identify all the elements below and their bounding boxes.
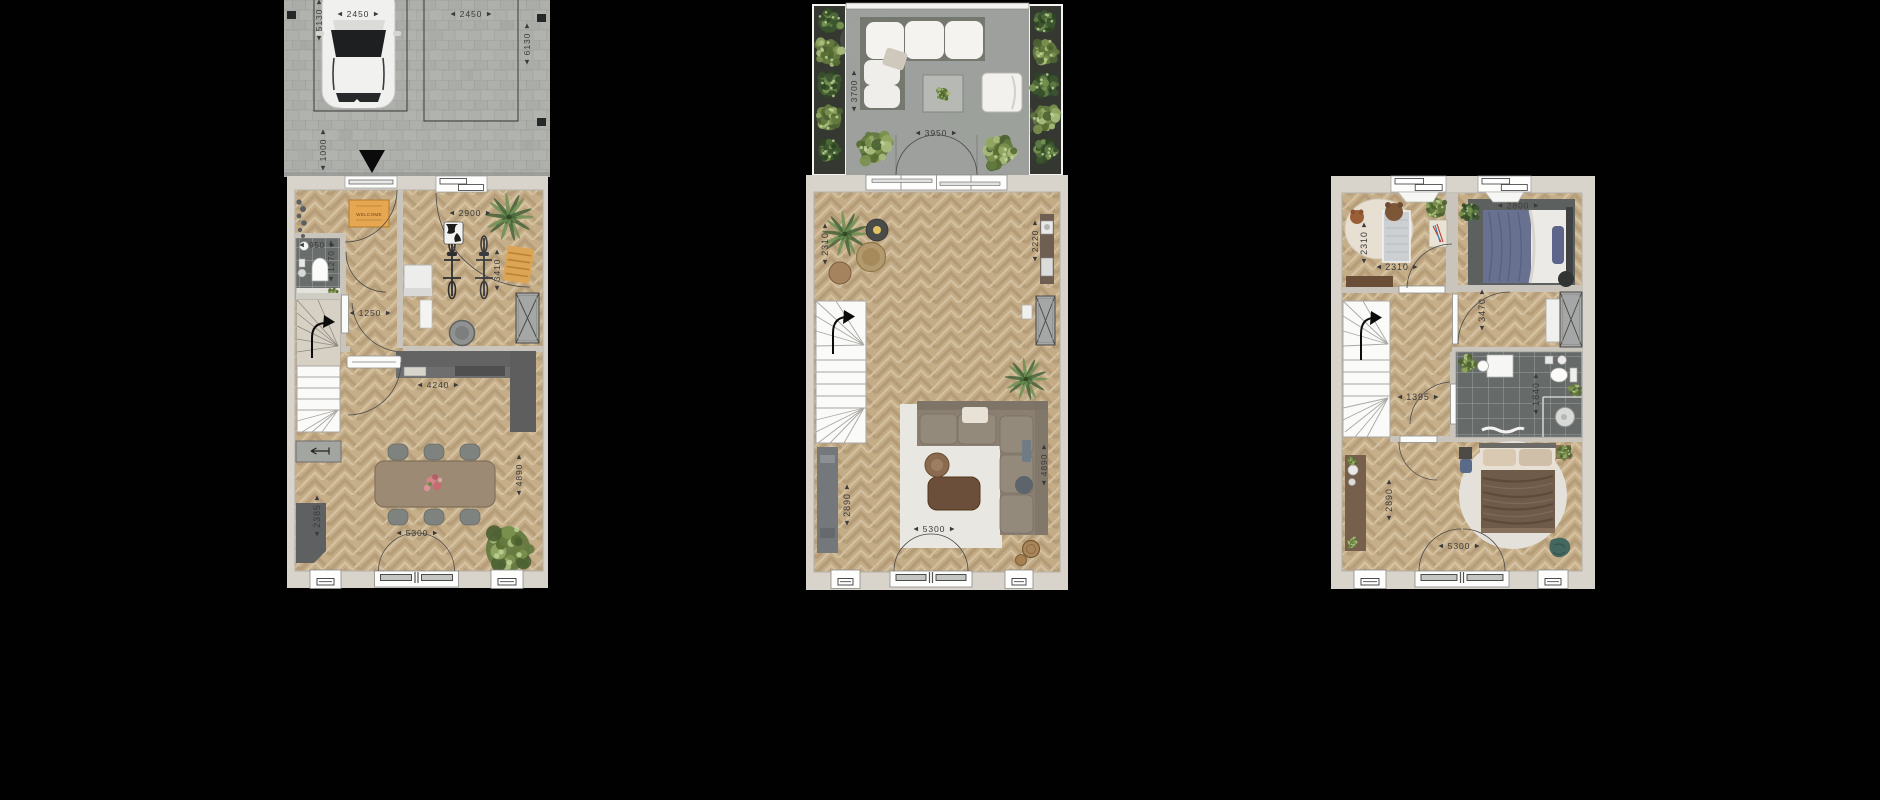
- svg-text:2310: 2310: [1359, 231, 1369, 255]
- svg-text:2385: 2385: [312, 504, 322, 528]
- svg-text:3700: 3700: [849, 80, 859, 103]
- svg-text:4890: 4890: [514, 464, 524, 487]
- svg-text:5300: 5300: [1448, 541, 1471, 551]
- svg-text:5300: 5300: [923, 524, 946, 534]
- svg-text:WELCOME: WELCOME: [356, 212, 382, 217]
- svg-text:1250: 1250: [359, 308, 382, 318]
- svg-text:3410: 3410: [492, 259, 502, 282]
- svg-text:4890: 4890: [1039, 454, 1049, 477]
- svg-text:6130: 6130: [522, 33, 532, 56]
- svg-text:2890: 2890: [842, 493, 852, 517]
- svg-text:2220: 2220: [1030, 230, 1040, 252]
- svg-text:2310: 2310: [820, 232, 830, 256]
- svg-text:3950: 3950: [925, 128, 948, 138]
- svg-text:3470: 3470: [1477, 298, 1487, 322]
- svg-text:1840: 1840: [1531, 382, 1541, 406]
- svg-text:4240: 4240: [427, 380, 450, 390]
- svg-text:2450: 2450: [460, 9, 483, 19]
- svg-text:1000: 1000: [318, 139, 328, 162]
- svg-text:2900: 2900: [459, 208, 482, 218]
- svg-text:2890: 2890: [1384, 488, 1394, 512]
- svg-text:2310: 2310: [1385, 262, 1409, 272]
- svg-text:950: 950: [309, 241, 325, 250]
- svg-text:2450: 2450: [347, 9, 370, 19]
- svg-text:1270: 1270: [327, 250, 336, 271]
- svg-text:5130: 5130: [314, 9, 324, 32]
